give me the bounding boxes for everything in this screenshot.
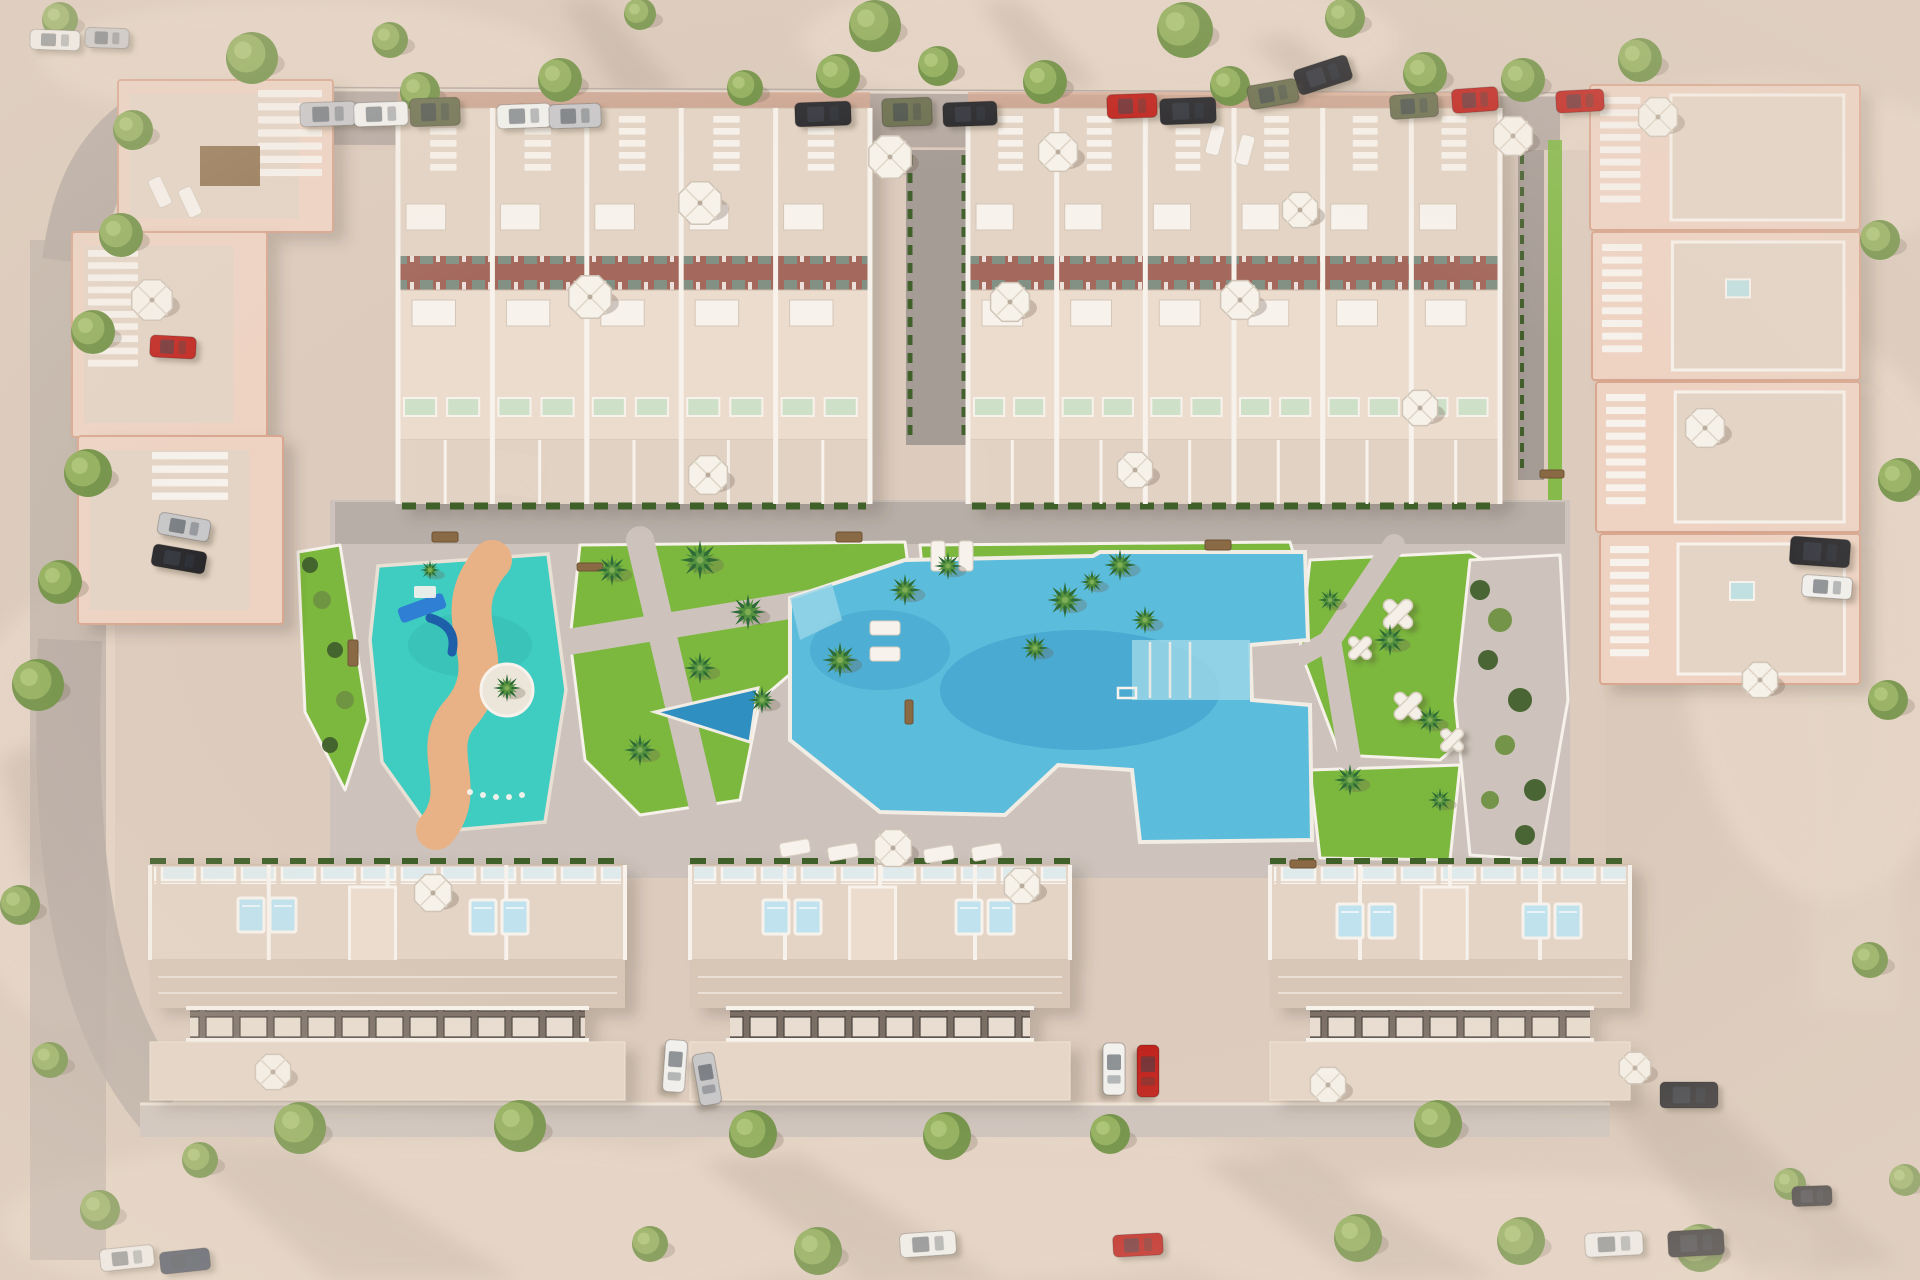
canopy-highlight [1096, 1121, 1110, 1135]
green-hatch [541, 398, 573, 416]
plunge-pool [238, 898, 264, 932]
canopy-highlight [45, 568, 60, 583]
apartment-building [118, 80, 333, 232]
car [1112, 1233, 1163, 1258]
plunge-pool [1337, 904, 1363, 938]
canopy-highlight [857, 9, 875, 27]
skylight [695, 300, 738, 326]
stair-tread [1610, 585, 1649, 592]
green-hatch [825, 398, 857, 416]
stair-tread [1602, 244, 1642, 251]
stair-tread [1600, 183, 1641, 190]
bush [313, 591, 331, 609]
car-glass [41, 33, 56, 46]
car-rear-glass [934, 1236, 944, 1251]
canopy-highlight [119, 117, 133, 131]
green-hatch [593, 398, 625, 416]
roof-terrace [1672, 242, 1844, 370]
green-hatch [1457, 398, 1487, 416]
car-glass [1801, 1190, 1813, 1203]
car-rear-glass [112, 32, 119, 44]
sill-bottom [726, 1038, 1034, 1042]
car-glass [111, 1251, 129, 1267]
stair-tread [524, 140, 550, 147]
canopy-highlight [1508, 66, 1523, 81]
parasol-pole [1326, 1083, 1331, 1088]
stair-tread [1175, 140, 1200, 147]
stair-tread [88, 262, 138, 269]
car-rear-glass [581, 108, 590, 123]
stair-tread [619, 116, 645, 123]
canopy-highlight [823, 62, 838, 77]
stair-tread [998, 128, 1023, 135]
parasol-pole [150, 298, 155, 303]
stair-tread [998, 140, 1023, 147]
parasol-pole [1238, 298, 1243, 303]
car-glass [312, 106, 329, 122]
stair-tread [1610, 546, 1649, 553]
car [85, 27, 130, 49]
palm-crown [745, 609, 751, 615]
car-rear-glass [913, 103, 922, 120]
plunge-pool [1555, 904, 1581, 938]
bottom-sidewalk [140, 1103, 1610, 1137]
stair-tread [1600, 109, 1641, 116]
stair-tread [88, 360, 138, 367]
car-rear-glass [1827, 544, 1838, 561]
stair-tread [1441, 128, 1466, 135]
car-glass [1141, 1056, 1155, 1072]
bush [1515, 825, 1535, 845]
stair-tread [1606, 433, 1646, 440]
stair-tread [152, 493, 228, 500]
bench [348, 640, 358, 666]
skylight [1337, 300, 1378, 326]
parasol-pole [1758, 678, 1763, 683]
window-band [190, 1010, 585, 1038]
car-glass [1124, 1238, 1140, 1253]
skylight [500, 204, 540, 230]
canopy-highlight [924, 53, 938, 67]
stair-tread [524, 152, 550, 159]
car-glass [94, 31, 108, 44]
canopy-highlight [1885, 466, 1900, 481]
stair-tread [808, 128, 834, 135]
canopy-highlight [733, 76, 745, 88]
car-glass [955, 106, 972, 122]
stair-tread [88, 274, 138, 281]
sprinkler-jet [467, 789, 473, 795]
canopy-highlight [1216, 73, 1230, 87]
stair-tread [1175, 164, 1200, 171]
palm-crown [759, 697, 764, 702]
green-hatch [498, 398, 530, 416]
stair-tread [1264, 164, 1289, 171]
car-glass [912, 1236, 930, 1252]
parasol-pole [698, 201, 703, 206]
skylight [1425, 300, 1466, 326]
car [882, 97, 933, 127]
roof-terrace [1671, 95, 1844, 220]
stair-tread [1610, 559, 1649, 566]
canopy-highlight [106, 221, 121, 236]
stair-tread [524, 164, 550, 171]
car-glass [366, 106, 383, 122]
skylight [1153, 204, 1190, 230]
bush [1495, 735, 1515, 755]
stair-tread [1600, 159, 1641, 166]
stair-tread [1353, 116, 1378, 123]
plunge-pool [795, 900, 821, 934]
green-hatch [1191, 398, 1221, 416]
palm-crown [1032, 645, 1037, 650]
parasol-pole [271, 1070, 276, 1075]
car-glass [1680, 1235, 1698, 1252]
car-glass [807, 106, 824, 122]
bench [1205, 540, 1231, 550]
tree [1878, 458, 1920, 502]
car [1660, 1082, 1718, 1108]
tree [1889, 1164, 1920, 1196]
canopy-highlight [1894, 1170, 1905, 1181]
stair-tread [430, 140, 456, 147]
stair-tread [1441, 140, 1466, 147]
palm-crown [945, 563, 950, 568]
palm-crown [1062, 597, 1068, 603]
stair-tread [152, 466, 228, 473]
window-band [1310, 1010, 1590, 1038]
skylight [1419, 204, 1456, 230]
stair-tread [1610, 649, 1649, 656]
car-glass [160, 339, 175, 354]
plunge-pool [470, 900, 496, 934]
canopy-highlight [638, 1232, 650, 1244]
stair-tread [1600, 146, 1641, 153]
canopy-highlight [48, 8, 60, 20]
stair-tread [88, 299, 138, 306]
green-hatch [782, 398, 814, 416]
roof-pergola [200, 146, 260, 186]
sun-lounger [870, 647, 900, 661]
car-rear-glass [1833, 581, 1842, 595]
bush [1470, 580, 1490, 600]
stair-core [1421, 887, 1467, 963]
car [410, 97, 461, 127]
car-rear-glass [1621, 1236, 1631, 1251]
sprinkler-jet [506, 794, 512, 800]
canopy-highlight [629, 4, 640, 15]
car [497, 103, 552, 129]
car-glass [1172, 103, 1189, 120]
skylight [976, 204, 1013, 230]
palm-crown [1387, 637, 1393, 643]
bush [1481, 791, 1499, 809]
car-glass [1673, 1087, 1690, 1104]
plunge-pool [763, 900, 789, 934]
stair-tread [1600, 171, 1641, 178]
car-glass [668, 1051, 683, 1068]
car [1792, 1185, 1833, 1206]
parasol-pole [1133, 468, 1138, 473]
palm-crown [1427, 717, 1432, 722]
palm-crown [1328, 598, 1332, 602]
bush [1524, 779, 1546, 801]
skylight [1159, 300, 1200, 326]
car-rear-glass [1702, 1234, 1712, 1250]
stair-tread [1441, 152, 1466, 159]
parasol-pole [431, 891, 436, 896]
plunge-pool [270, 898, 296, 932]
stair-tread [619, 152, 645, 159]
parasol-pole [1656, 115, 1661, 120]
stair-tread [1600, 122, 1641, 129]
green-hatch [1329, 398, 1359, 416]
stair-tread [1606, 446, 1646, 453]
sun-lounger [870, 621, 900, 635]
stair-tread [998, 164, 1023, 171]
car-glass [560, 108, 576, 124]
blue-skylight [1730, 582, 1754, 600]
car [1555, 89, 1604, 113]
bush [302, 557, 318, 573]
car [1137, 1045, 1159, 1097]
canopy-highlight [1858, 948, 1870, 960]
car-glass [1803, 542, 1822, 561]
car-glass [1813, 579, 1829, 594]
car-glass [163, 549, 181, 566]
front-apron [150, 1042, 625, 1100]
stair-tread [1610, 598, 1649, 605]
stair-tread [1441, 116, 1466, 123]
canopy-highlight [1866, 227, 1880, 241]
stair-core [350, 887, 396, 963]
green-hatch [1369, 398, 1399, 416]
car [159, 1247, 211, 1274]
green-hatch [447, 398, 479, 416]
car-glass [1462, 92, 1477, 108]
car-rear-glass [441, 103, 450, 120]
bottom-block [1270, 861, 1630, 1100]
canopy-highlight [234, 41, 252, 59]
car-glass [1107, 1054, 1121, 1070]
stair-tread [1606, 394, 1646, 401]
stair-tread [1441, 164, 1466, 171]
stair-tread [1606, 407, 1646, 414]
stair-tread [619, 140, 645, 147]
car-glass [1118, 98, 1134, 114]
parasol-pole [1703, 426, 1708, 431]
sprinkler-jet [480, 792, 486, 798]
plunge-pool [1369, 904, 1395, 938]
skylight [595, 204, 635, 230]
canopy-highlight [1504, 1226, 1520, 1242]
car-rear-glass [1107, 1075, 1120, 1083]
skylight [506, 300, 549, 326]
stair-tread [998, 152, 1023, 159]
skylight [784, 204, 824, 230]
car [1584, 1230, 1643, 1257]
canopy-highlight [1421, 1109, 1437, 1125]
parasol-pole [1008, 300, 1013, 305]
canopy-highlight [930, 1121, 946, 1137]
canopy-highlight [502, 1109, 520, 1127]
car-glass [170, 1254, 186, 1270]
parasol-pole [1298, 208, 1303, 213]
car [795, 101, 852, 127]
bush [327, 642, 343, 658]
stair-tread [1264, 152, 1289, 159]
car-rear-glass [334, 106, 343, 121]
car-rear-glass [61, 34, 69, 46]
stair-tread [258, 90, 322, 97]
car-rear-glass [829, 106, 838, 121]
stair-tread [430, 128, 456, 135]
car-rear-glass [190, 1253, 199, 1267]
bush [1478, 650, 1498, 670]
stair-tread [1606, 497, 1646, 504]
bench [836, 532, 862, 542]
canopy-highlight [1874, 687, 1888, 701]
stair-tread [430, 152, 456, 159]
canopy-highlight [1331, 5, 1345, 19]
stair-tread [152, 452, 228, 459]
car-rear-glass [976, 106, 985, 121]
car [30, 29, 81, 51]
stair-tread [1606, 458, 1646, 465]
stair-tread [258, 129, 322, 136]
green-hatch [730, 398, 762, 416]
canopy-highlight [1625, 46, 1640, 61]
canopy-highlight [78, 318, 93, 333]
palm-crown [1090, 580, 1094, 584]
stair-tread [1602, 307, 1642, 314]
blue-skylight [1726, 279, 1750, 297]
car [1389, 92, 1439, 119]
roof-slab [690, 960, 1070, 1008]
parasol-pole [1056, 150, 1061, 155]
car-rear-glass [1696, 1087, 1705, 1103]
palm-crown [1142, 617, 1147, 622]
canopy-highlight [20, 668, 38, 686]
skylight [412, 300, 455, 326]
car [662, 1039, 688, 1092]
lawn-bottom-right [1310, 765, 1460, 860]
car [1451, 86, 1499, 113]
stair-core [850, 887, 896, 963]
stair-tread [88, 287, 138, 294]
stair-tread [998, 116, 1023, 123]
sprinkler-jet [493, 794, 499, 800]
stair-tread [1606, 420, 1646, 427]
parasol-pole [1020, 884, 1025, 889]
bush [336, 691, 354, 709]
stair-tread [1353, 128, 1378, 135]
car-rear-glass [1194, 103, 1203, 119]
canopy-highlight [1166, 12, 1185, 31]
stair-tread [1264, 116, 1289, 123]
car-rear-glass [387, 106, 396, 121]
balcony-windows [398, 256, 870, 290]
plunge-pool [956, 900, 982, 934]
car [1107, 93, 1158, 119]
palm-crown [837, 657, 843, 663]
car-glass [1597, 1236, 1615, 1252]
stair-tread [1610, 572, 1649, 579]
stair-tread [1610, 623, 1649, 630]
skylight [790, 300, 833, 326]
stair-tread [1610, 636, 1649, 643]
stair-tread [1610, 610, 1649, 617]
sill-top [1306, 1006, 1594, 1010]
stair-tread [1087, 128, 1112, 135]
car-rear-glass [1419, 98, 1428, 113]
car [354, 101, 409, 127]
green-hatch [1103, 398, 1133, 416]
plunge-pool [1523, 904, 1549, 938]
canopy-highlight [1410, 60, 1425, 75]
skylight [1242, 204, 1279, 230]
stair-tread [258, 169, 322, 176]
sill-top [186, 1006, 589, 1010]
stair-tread [524, 128, 550, 135]
stair-tread [1353, 152, 1378, 159]
car-rear-glass [1817, 1190, 1824, 1202]
palm-crown [697, 665, 703, 671]
stair-tread [1602, 269, 1642, 276]
stair-tread [1353, 140, 1378, 147]
bush [1488, 608, 1512, 632]
palm-crown [637, 747, 643, 753]
stair-tread [258, 143, 322, 150]
green-hatch [636, 398, 668, 416]
palm-crown [428, 568, 432, 572]
parasol-pole [888, 155, 893, 160]
stair-tread [808, 164, 834, 171]
canopy-highlight [1030, 68, 1045, 83]
car-glass [893, 103, 909, 121]
car-rear-glass [1141, 1077, 1154, 1085]
side-house [1592, 232, 1860, 380]
car-rear-glass [667, 1072, 681, 1081]
green-hatch [1240, 398, 1270, 416]
car-glass [421, 103, 437, 121]
skylight [1065, 204, 1102, 230]
green-hatch [1063, 398, 1093, 416]
stair-tread [1606, 471, 1646, 478]
green-hatch [404, 398, 436, 416]
stair-tread [713, 140, 739, 147]
canopy-highlight [736, 1119, 752, 1135]
palm-crown [696, 556, 703, 563]
car [1801, 574, 1852, 599]
stair-tread [713, 152, 739, 159]
canopy-highlight [38, 1048, 50, 1060]
canopy-highlight [801, 1236, 817, 1252]
stair-tread [713, 164, 739, 171]
green-hatch [687, 398, 719, 416]
skylight [1331, 204, 1368, 230]
stair-tread [1602, 282, 1642, 289]
side-house [1590, 85, 1860, 230]
parasol-pole [588, 295, 593, 300]
canopy-highlight [282, 1111, 300, 1129]
parasol-pole [1418, 406, 1423, 411]
parasol-pole [891, 846, 896, 851]
car-rear-glass [178, 341, 186, 355]
car-glass [509, 108, 526, 124]
palm-crown [1347, 777, 1353, 783]
car [549, 103, 602, 129]
